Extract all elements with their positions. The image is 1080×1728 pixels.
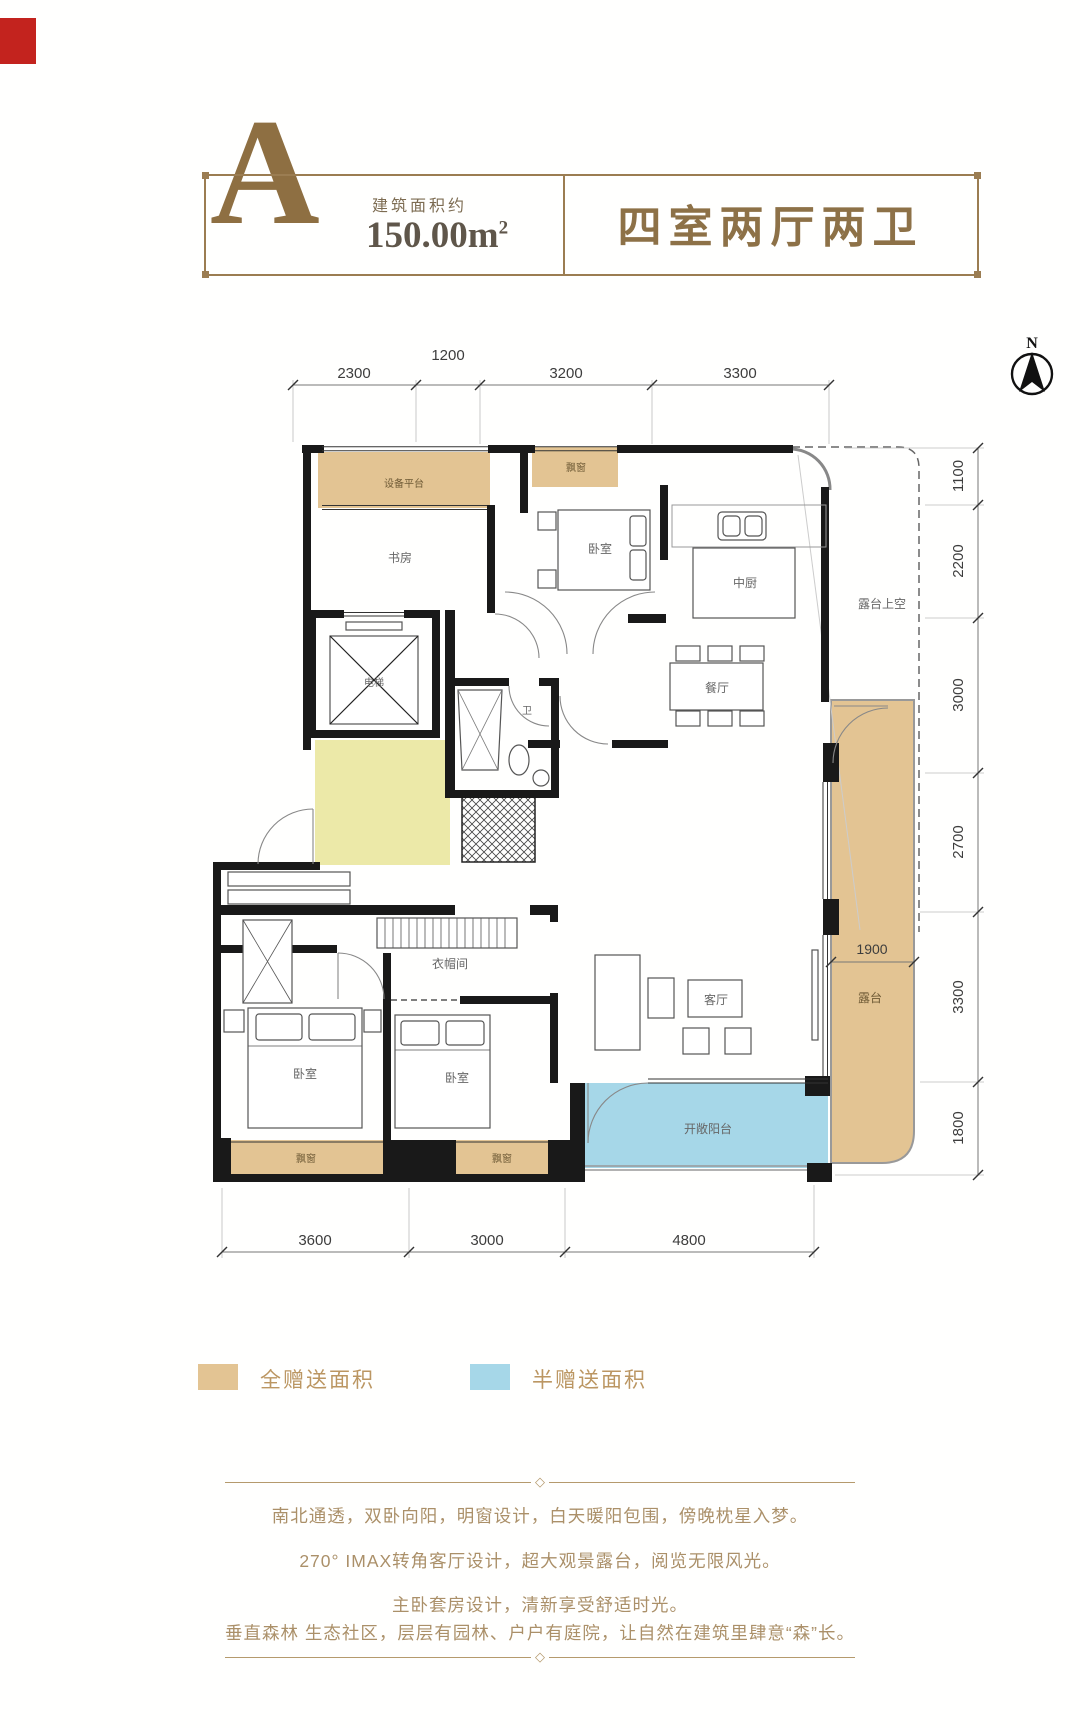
diamond-icon: ◇ <box>531 1652 549 1662</box>
label-bay-window-left: 飘窗 <box>296 1152 316 1165</box>
north-label: N <box>1026 335 1038 352</box>
red-corner-mark <box>0 18 36 64</box>
kitchen-fittings <box>672 505 826 618</box>
bed-second-bedroom <box>395 1015 490 1128</box>
label-open-balcony: 开敞阳台 <box>684 1121 732 1136</box>
floorplan-drawing: 电梯 <box>0 280 1080 1280</box>
dim-right-6: 1800 <box>950 1111 967 1144</box>
label-terrace-above: 露台上空 <box>858 596 906 611</box>
dim-bottom-2: 3000 <box>470 1232 503 1249</box>
dim-right-1: 1100 <box>950 460 967 492</box>
corner-square <box>202 271 209 278</box>
label-cloakroom: 衣帽间 <box>432 956 468 971</box>
sink <box>533 770 549 786</box>
dim-right-2: 2200 <box>950 544 967 577</box>
label-equipment-platform: 设备平台 <box>384 477 424 490</box>
dim-top-2: 1200 <box>431 347 464 364</box>
label-kitchen: 中厨 <box>733 575 757 590</box>
diamond-icon: ◇ <box>531 1477 549 1487</box>
elevator-label: 电梯 <box>364 676 384 689</box>
label-bedroom-master: 卧室 <box>293 1066 317 1081</box>
unit-title: 四室两厅两卫 <box>566 174 975 272</box>
area-caption: 建筑面积约 <box>372 192 467 216</box>
area-number: 150.00m <box>366 215 499 256</box>
toilet <box>509 745 529 775</box>
legend-label-half-gift: 半赠送面积 <box>532 1364 647 1394</box>
dim-bottom-3: 4800 <box>672 1232 705 1249</box>
bathroom-fixtures <box>458 690 549 786</box>
label-bathroom: 卫 <box>522 706 532 717</box>
cloakroom-fittings <box>228 872 517 1003</box>
description-line-3: 主卧套房设计，清新享受舒适时光。 <box>0 1592 1080 1617</box>
description-line-4: 垂直森林 生态社区，层层有园林、户户有庭院，让自然在建筑里肆意“森”长。 <box>0 1620 1080 1645</box>
legend-label-full-gift: 全赠送面积 <box>260 1364 375 1394</box>
label-terrace: 露台 <box>858 990 882 1005</box>
dim-right-3: 3000 <box>950 678 967 711</box>
elevator: 电梯 <box>330 622 418 724</box>
dim-inner-label: 1900 <box>856 941 887 957</box>
rounded-corner-wall <box>790 449 830 490</box>
label-dining: 餐厅 <box>705 680 729 695</box>
label-study: 书房 <box>388 550 412 565</box>
area-value: 150.00m2 <box>366 214 508 257</box>
entry-doormat <box>462 797 535 862</box>
header-divider <box>563 176 565 274</box>
zone-terrace <box>831 700 914 1163</box>
label-living-room: 客厅 <box>704 992 728 1007</box>
dim-top-4: 3300 <box>723 365 756 382</box>
dim-top-1: 2300 <box>337 365 370 382</box>
floorplan-page: A 建筑面积约 150.00m2 四室两厅两卫 <box>0 0 1080 1728</box>
dim-right-5: 3300 <box>950 980 967 1013</box>
description-line-2: 270° IMAX转角客厅设计，超大观景露台，阅览无限风光。 <box>0 1548 1080 1573</box>
legend-swatch-half-gift <box>470 1364 510 1390</box>
dimension-top: 2300 1200 3200 3300 <box>288 347 834 444</box>
corner-square <box>202 172 209 179</box>
north-compass-icon: N <box>1012 335 1052 394</box>
label-bedroom-top: 卧室 <box>588 541 612 556</box>
area-exponent: 2 <box>499 218 509 239</box>
divider-bottom: ◇ <box>225 1652 855 1662</box>
sofa <box>595 955 640 1050</box>
corner-square <box>974 172 981 179</box>
north-arrow <box>1019 352 1045 392</box>
label-bedroom-second: 卧室 <box>445 1070 469 1085</box>
shower <box>458 690 502 770</box>
dim-bottom-1: 3600 <box>298 1232 331 1249</box>
tv-cabinet <box>812 950 818 1040</box>
legend-swatch-full-gift <box>198 1364 238 1390</box>
zone-entry-hall <box>315 740 450 865</box>
divider-top: ◇ <box>225 1477 855 1487</box>
dim-right-4: 2700 <box>950 825 967 858</box>
label-bay-window-top: 飘窗 <box>566 461 586 474</box>
label-bay-window-mid: 飘窗 <box>492 1152 512 1165</box>
description-line-1: 南北通透，双卧向阳，明窗设计，白天暖阳包围，傍晚枕星入梦。 <box>0 1503 1080 1528</box>
dimension-bottom: 3600 3000 4800 <box>217 1185 819 1258</box>
corner-square <box>974 271 981 278</box>
dim-top-3: 3200 <box>549 365 582 382</box>
